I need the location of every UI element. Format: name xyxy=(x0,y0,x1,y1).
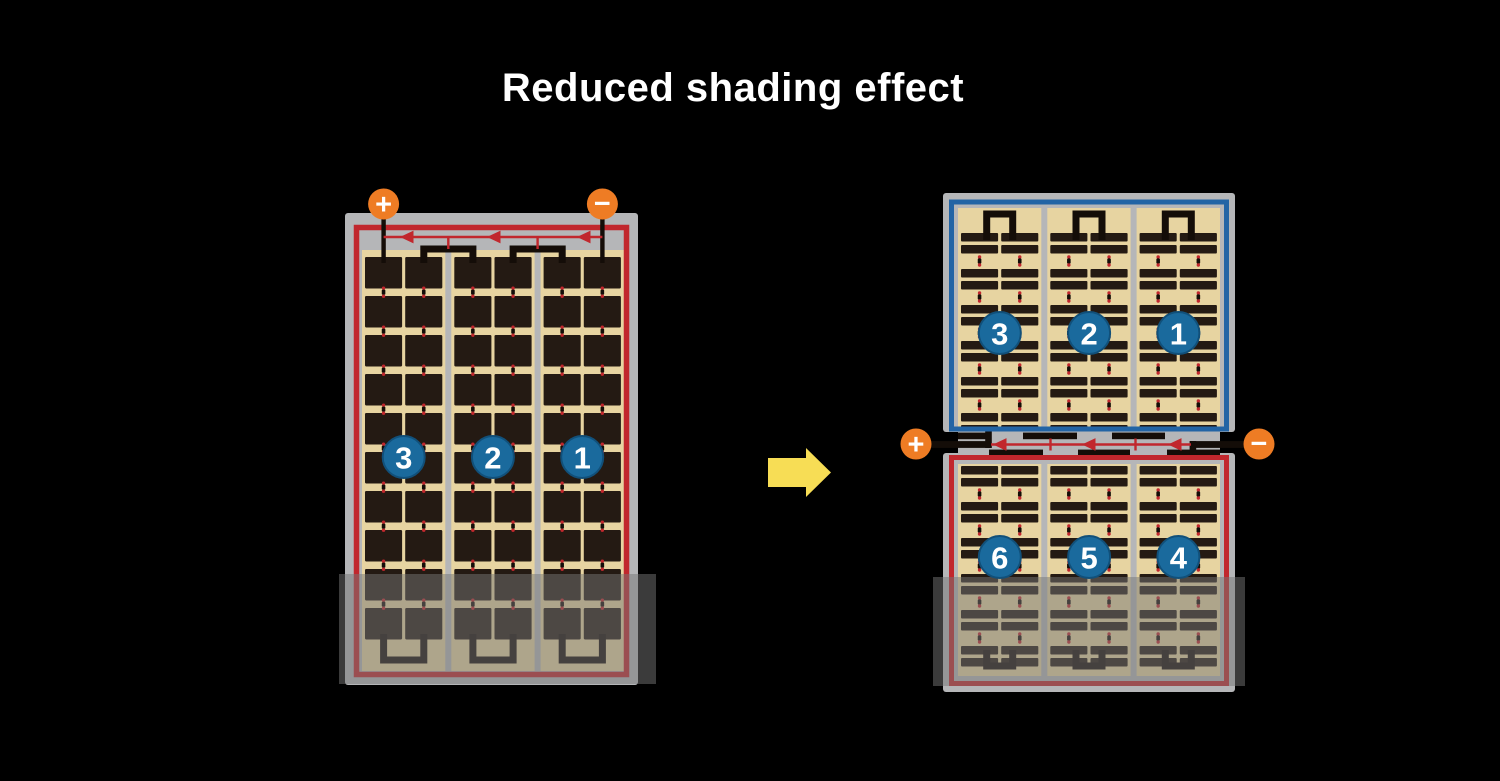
cell-connector xyxy=(978,366,982,371)
half-cell xyxy=(1180,514,1217,523)
cell-connector-dot xyxy=(471,326,474,329)
cell-connector-dot xyxy=(978,488,981,491)
half-cell xyxy=(1050,269,1087,278)
cell-connector-dot xyxy=(1107,496,1110,499)
cell-connector-dot xyxy=(1156,524,1159,527)
cell-connector-dot xyxy=(382,334,385,337)
half-cell xyxy=(1180,269,1217,278)
half-cell xyxy=(1140,377,1177,386)
cell-connector-dot xyxy=(1107,568,1110,571)
cell-connector-dot xyxy=(1156,532,1159,535)
cell-connector-dot xyxy=(1018,363,1021,366)
cell-connector-dot xyxy=(422,373,425,376)
cell-connector-dot xyxy=(382,373,385,376)
cell-connector-dot xyxy=(1067,263,1070,266)
cell-connector-dot xyxy=(601,334,604,337)
cell-connector xyxy=(471,407,475,412)
cell-connector-dot xyxy=(422,334,425,337)
cell-connector xyxy=(422,290,426,295)
after-panel: + − 3 2 1 6 xyxy=(901,193,1275,692)
solar-cell xyxy=(544,530,581,562)
half-cell xyxy=(1140,245,1177,254)
cell-connector xyxy=(382,524,386,529)
cell-connector xyxy=(1107,491,1111,496)
cell-connector-dot xyxy=(601,529,604,532)
cell-connector xyxy=(1107,366,1111,371)
half-cell xyxy=(1180,466,1217,475)
cell-connector-dot xyxy=(1156,291,1159,294)
cell-connector-dot xyxy=(1107,371,1110,374)
half-cell xyxy=(1001,269,1038,278)
cell-connector-dot xyxy=(978,568,981,571)
cell-connector xyxy=(1156,527,1160,532)
cell-connector-dot xyxy=(978,524,981,527)
cell-connector-dot xyxy=(1156,371,1159,374)
cell-connector-dot xyxy=(1067,299,1070,302)
cell-connector-dot xyxy=(471,412,474,415)
cell-connector xyxy=(1156,294,1160,299)
half-cell xyxy=(961,233,998,242)
positive-terminal-label: + xyxy=(908,429,925,461)
cell-connector xyxy=(382,563,386,568)
cell-connector-dot xyxy=(1067,532,1070,535)
cell-connector-dot xyxy=(1018,299,1021,302)
positive-lead xyxy=(929,441,989,448)
cell-connector-dot xyxy=(1107,399,1110,402)
half-cell xyxy=(1001,389,1038,398)
solar-cell xyxy=(495,296,532,328)
cell-connector-dot xyxy=(511,521,514,524)
positive-terminal-label: + xyxy=(375,189,392,221)
cell-connector xyxy=(978,258,982,263)
cell-connector xyxy=(1067,366,1071,371)
cell-connector xyxy=(1156,491,1160,496)
half-cell xyxy=(1001,478,1038,487)
cell-connector-dot xyxy=(422,521,425,524)
cell-connector-dot xyxy=(1018,488,1021,491)
cell-connector-dot xyxy=(560,373,563,376)
cell-connector-dot xyxy=(471,529,474,532)
cell-connector-dot xyxy=(978,363,981,366)
cell-connector xyxy=(1107,527,1111,532)
cell-connector-dot xyxy=(422,560,425,563)
cell-connector xyxy=(1067,491,1071,496)
negative-terminal-label: − xyxy=(1251,428,1268,460)
cell-connector-dot xyxy=(1156,488,1159,491)
string-number: 5 xyxy=(1080,541,1097,576)
solar-cell xyxy=(544,335,581,367)
half-cell xyxy=(961,502,998,511)
cell-connector-dot xyxy=(422,404,425,407)
transform-arrow xyxy=(768,448,831,497)
cell-connector-dot xyxy=(1107,291,1110,294)
cell-connector xyxy=(560,290,564,295)
half-cell xyxy=(961,466,998,475)
solar-cell xyxy=(584,530,621,562)
cell-connector-dot xyxy=(422,529,425,532)
cell-connector xyxy=(1067,294,1071,299)
cell-connector xyxy=(1018,527,1022,532)
cell-connector-dot xyxy=(382,490,385,493)
half-cell xyxy=(1140,233,1177,242)
cell-connector xyxy=(1156,402,1160,407)
cell-connector xyxy=(1067,402,1071,407)
cell-connector xyxy=(1018,491,1022,496)
cell-connector xyxy=(1018,258,1022,263)
half-cell xyxy=(1050,466,1087,475)
string-badge: 3 xyxy=(383,436,425,478)
half-cell xyxy=(1140,466,1177,475)
cell-connector-dot xyxy=(978,299,981,302)
half-cell xyxy=(1050,353,1087,362)
cell-connector-dot xyxy=(382,365,385,368)
cell-connector-dot xyxy=(1107,255,1110,258)
cell-connector-dot xyxy=(1067,371,1070,374)
cell-connector-dot xyxy=(1107,299,1110,302)
cell-connector-dot xyxy=(511,326,514,329)
cell-connector-dot xyxy=(1156,299,1159,302)
half-cell xyxy=(1091,377,1128,386)
cell-connector-dot xyxy=(601,443,604,446)
cell-connector-dot xyxy=(601,404,604,407)
cell-connector-dot xyxy=(1018,371,1021,374)
shade-overlay-after xyxy=(933,577,1245,686)
cell-connector-dot xyxy=(1107,363,1110,366)
solar-cell xyxy=(405,296,442,328)
half-cell xyxy=(1180,478,1217,487)
cell-connector-dot xyxy=(1197,407,1200,410)
after-positive-terminal: + xyxy=(901,429,932,462)
cell-connector-dot xyxy=(511,490,514,493)
cell-connector-dot xyxy=(1107,488,1110,491)
solar-cell xyxy=(584,374,621,406)
cell-connector xyxy=(978,527,982,532)
cell-connector xyxy=(471,563,475,568)
cell-connector xyxy=(601,407,605,412)
cell-connector-dot xyxy=(511,365,514,368)
solar-cell xyxy=(365,296,402,328)
cell-connector-dot xyxy=(560,295,563,298)
solar-cell xyxy=(365,491,402,523)
section-divider xyxy=(1131,208,1137,428)
cell-connector-dot xyxy=(422,482,425,485)
cell-connector xyxy=(978,402,982,407)
solar-cell xyxy=(405,530,442,562)
cell-connector-dot xyxy=(978,255,981,258)
cell-connector-dot xyxy=(1067,568,1070,571)
solar-cell xyxy=(405,335,442,367)
cell-connector-dot xyxy=(1067,496,1070,499)
cell-connector xyxy=(978,294,982,299)
cell-connector-dot xyxy=(511,482,514,485)
cell-connector-dot xyxy=(471,568,474,571)
cell-connector-dot xyxy=(1067,363,1070,366)
cell-connector xyxy=(382,407,386,412)
section-divider xyxy=(1041,208,1047,428)
cell-connector xyxy=(471,290,475,295)
cell-connector-dot xyxy=(382,560,385,563)
string-number: 6 xyxy=(991,541,1008,576)
half-cell xyxy=(1050,377,1087,386)
half-cell xyxy=(1091,245,1128,254)
string-number: 1 xyxy=(574,441,591,476)
cell-connector-dot xyxy=(1018,496,1021,499)
cell-connector xyxy=(511,485,515,490)
cell-connector-dot xyxy=(1156,255,1159,258)
cell-connector-dot xyxy=(471,490,474,493)
cell-connector xyxy=(1107,294,1111,299)
half-cell xyxy=(1001,353,1038,362)
cell-connector-dot xyxy=(560,568,563,571)
half-cell xyxy=(1180,233,1217,242)
cell-connector-dot xyxy=(422,287,425,290)
half-cell xyxy=(1140,281,1177,290)
cell-connector-dot xyxy=(382,443,385,446)
cell-connector xyxy=(422,329,426,334)
half-cell xyxy=(961,478,998,487)
half-cell xyxy=(1091,466,1128,475)
string-badge: 4 xyxy=(1157,536,1199,578)
cell-connector xyxy=(560,368,564,373)
cell-connector xyxy=(511,524,515,529)
cell-connector-dot xyxy=(978,263,981,266)
string-number: 4 xyxy=(1170,541,1188,576)
half-cell xyxy=(1091,233,1128,242)
solar-cell xyxy=(584,335,621,367)
cell-connector-dot xyxy=(1197,532,1200,535)
half-cell xyxy=(1050,502,1087,511)
cell-connector-dot xyxy=(560,326,563,329)
half-cell xyxy=(1001,281,1038,290)
string-badge: 6 xyxy=(979,536,1021,578)
cell-connector-dot xyxy=(601,412,604,415)
half-cell xyxy=(1180,502,1217,511)
solar-cell xyxy=(584,491,621,523)
half-cell xyxy=(1091,353,1128,362)
half-cell xyxy=(961,514,998,523)
cell-connector-dot xyxy=(1197,363,1200,366)
cell-connector-dot xyxy=(1018,407,1021,410)
solar-cell xyxy=(495,335,532,367)
solar-cell xyxy=(454,530,491,562)
cell-connector xyxy=(560,329,564,334)
cell-connector-dot xyxy=(1107,524,1110,527)
solar-cell xyxy=(544,296,581,328)
cell-connector-dot xyxy=(1197,496,1200,499)
shading-diagram: + − 3 2 1 xyxy=(0,0,1500,781)
cell-connector xyxy=(978,491,982,496)
cell-connector xyxy=(511,329,515,334)
cell-connector xyxy=(1197,366,1201,371)
cell-connector-dot xyxy=(1197,488,1200,491)
half-cell xyxy=(1001,466,1038,475)
cell-connector xyxy=(511,563,515,568)
half-cell xyxy=(1091,413,1128,422)
cell-connector-dot xyxy=(601,482,604,485)
cell-connector-dot xyxy=(1197,524,1200,527)
cell-connector-dot xyxy=(978,291,981,294)
cell-connector-dot xyxy=(978,532,981,535)
half-cell xyxy=(1091,514,1128,523)
cell-connector-dot xyxy=(1018,524,1021,527)
cell-connector xyxy=(1107,402,1111,407)
cell-connector-dot xyxy=(1018,255,1021,258)
solar-cell xyxy=(454,374,491,406)
cell-connector xyxy=(601,290,605,295)
half-cell xyxy=(1140,514,1177,523)
cell-connector-dot xyxy=(1067,407,1070,410)
cell-connector-dot xyxy=(382,521,385,524)
infographic-canvas: Reduced shading effect xyxy=(0,0,1500,781)
solar-cell xyxy=(365,335,402,367)
cell-connector-dot xyxy=(560,560,563,563)
cell-connector-dot xyxy=(422,568,425,571)
half-cell xyxy=(1140,353,1177,362)
cell-connector-dot xyxy=(601,287,604,290)
half-cell xyxy=(1050,305,1087,314)
half-cell xyxy=(1180,413,1217,422)
cell-connector-dot xyxy=(1018,263,1021,266)
cell-connector-dot xyxy=(601,295,604,298)
cell-connector-dot xyxy=(422,490,425,493)
cell-connector-dot xyxy=(471,560,474,563)
cell-connector-dot xyxy=(1197,568,1200,571)
cell-connector xyxy=(1156,258,1160,263)
half-cell xyxy=(1050,389,1087,398)
cell-connector-dot xyxy=(601,373,604,376)
half-cell xyxy=(1001,377,1038,386)
cell-connector-dot xyxy=(382,404,385,407)
cell-connector-dot xyxy=(382,287,385,290)
string-number: 2 xyxy=(1080,317,1097,352)
cell-connector-dot xyxy=(1067,524,1070,527)
cell-connector-dot xyxy=(1156,407,1159,410)
cell-connector-dot xyxy=(511,560,514,563)
half-cell xyxy=(961,353,998,362)
cell-connector-dot xyxy=(471,295,474,298)
cell-connector-dot xyxy=(422,295,425,298)
half-cell xyxy=(1140,269,1177,278)
cell-connector-dot xyxy=(511,412,514,415)
cell-connector xyxy=(471,329,475,334)
cell-connector xyxy=(511,290,515,295)
cell-connector-dot xyxy=(511,568,514,571)
cell-connector xyxy=(1197,402,1201,407)
cell-connector-dot xyxy=(471,334,474,337)
string-number: 2 xyxy=(484,441,501,476)
cell-connector-dot xyxy=(511,404,514,407)
cell-connector xyxy=(471,524,475,529)
cell-connector-dot xyxy=(601,365,604,368)
cell-connector-dot xyxy=(382,529,385,532)
cell-connector-dot xyxy=(560,287,563,290)
cell-connector xyxy=(601,329,605,334)
string-badge: 1 xyxy=(561,436,603,478)
cell-connector-dot xyxy=(560,529,563,532)
solar-cell xyxy=(584,296,621,328)
cell-connector-dot xyxy=(422,326,425,329)
cell-connector xyxy=(1156,366,1160,371)
cell-connector-dot xyxy=(511,373,514,376)
cell-connector-dot xyxy=(471,404,474,407)
cell-connector-dot xyxy=(1018,532,1021,535)
cell-connector xyxy=(422,368,426,373)
half-cell xyxy=(1001,245,1038,254)
cell-connector-dot xyxy=(382,568,385,571)
cell-connector-dot xyxy=(382,412,385,415)
cell-connector xyxy=(1197,491,1201,496)
cell-connector-dot xyxy=(382,482,385,485)
cell-connector-dot xyxy=(471,287,474,290)
cell-connector-dot xyxy=(1067,291,1070,294)
solar-cell xyxy=(544,374,581,406)
half-cell xyxy=(1091,269,1128,278)
cell-connector xyxy=(1197,258,1201,263)
before-panel: + − 3 2 1 xyxy=(339,188,656,685)
cell-connector xyxy=(422,563,426,568)
half-cell xyxy=(961,389,998,398)
half-cell xyxy=(1001,413,1038,422)
solar-cell xyxy=(495,530,532,562)
half-cell xyxy=(1180,389,1217,398)
cell-connector-dot xyxy=(1197,399,1200,402)
half-cell xyxy=(1001,514,1038,523)
negative-lead xyxy=(1191,441,1248,448)
string-number: 1 xyxy=(1170,317,1187,352)
cell-connector xyxy=(1018,294,1022,299)
cell-connector-dot xyxy=(1197,255,1200,258)
cell-connector-dot xyxy=(560,490,563,493)
half-cell xyxy=(961,245,998,254)
string-number: 3 xyxy=(395,441,412,476)
cell-connector xyxy=(422,524,426,529)
cell-connector xyxy=(560,485,564,490)
cell-connector-dot xyxy=(1067,488,1070,491)
half-cell xyxy=(1180,245,1217,254)
cell-connector-dot xyxy=(511,295,514,298)
cell-connector-dot xyxy=(560,412,563,415)
cell-connector xyxy=(560,407,564,412)
cell-connector xyxy=(422,485,426,490)
cell-connector-dot xyxy=(1067,255,1070,258)
shade-overlay-before xyxy=(339,574,656,684)
cell-connector xyxy=(471,485,475,490)
cell-connector xyxy=(601,524,605,529)
cell-connector-dot xyxy=(1107,263,1110,266)
string-badge: 2 xyxy=(1068,312,1110,354)
cell-connector-dot xyxy=(601,490,604,493)
cell-connector-dot xyxy=(511,287,514,290)
cell-connector xyxy=(382,368,386,373)
cell-connector xyxy=(1197,294,1201,299)
half-cell xyxy=(1140,478,1177,487)
half-cell xyxy=(1140,502,1177,511)
solar-cell xyxy=(454,296,491,328)
cell-connector xyxy=(471,368,475,373)
cell-connector-dot xyxy=(601,560,604,563)
cell-connector-dot xyxy=(1067,399,1070,402)
string-badge: 5 xyxy=(1068,536,1110,578)
cell-connector-dot xyxy=(1197,371,1200,374)
cell-connector xyxy=(382,329,386,334)
cell-connector-dot xyxy=(1018,568,1021,571)
half-cell xyxy=(1091,502,1128,511)
half-cell xyxy=(1091,389,1128,398)
cell-connector-dot xyxy=(601,521,604,524)
cell-connector-dot xyxy=(560,404,563,407)
cell-connector-dot xyxy=(1197,263,1200,266)
half-cell xyxy=(1050,413,1087,422)
